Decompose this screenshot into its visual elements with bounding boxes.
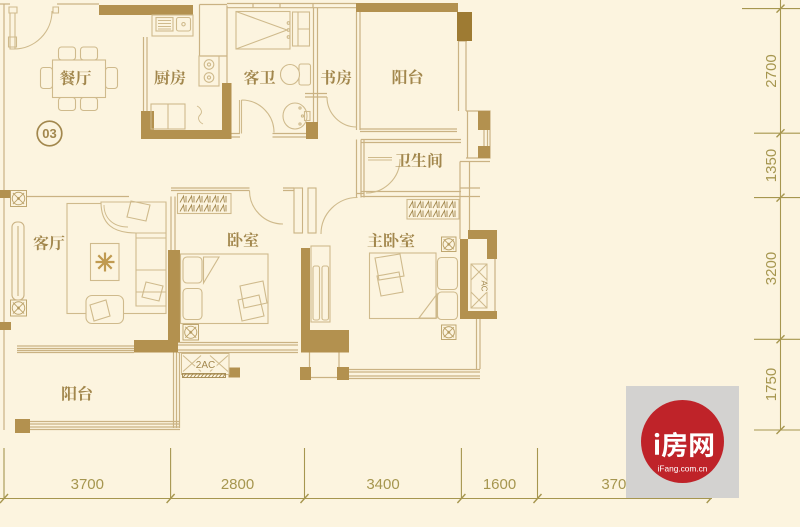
svg-text:1350: 1350 [763, 149, 780, 182]
svg-text:1600: 1600 [483, 476, 516, 493]
svg-text:3700: 3700 [71, 476, 104, 493]
svg-text:2700: 2700 [763, 54, 780, 87]
svg-text:1750: 1750 [763, 368, 780, 401]
svg-text:2AC: 2AC [196, 360, 215, 371]
svg-text:2800: 2800 [221, 476, 254, 493]
svg-text:AC: AC [480, 280, 489, 291]
svg-text:03: 03 [42, 126, 56, 141]
svg-text:3200: 3200 [763, 252, 780, 285]
svg-text:3400: 3400 [366, 476, 399, 493]
svg-text:iFang.com.cn: iFang.com.cn [658, 464, 708, 474]
